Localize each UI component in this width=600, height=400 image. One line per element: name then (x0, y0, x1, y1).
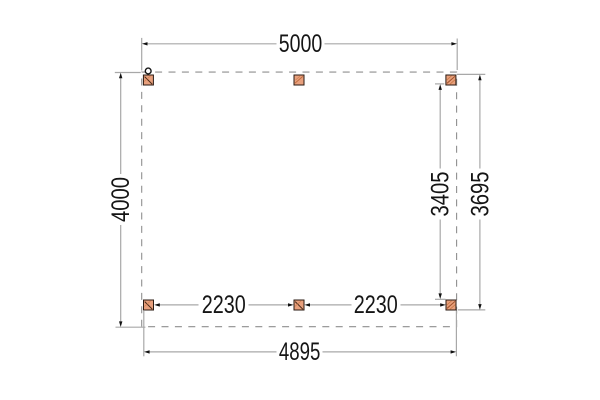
svg-text:4000: 4000 (107, 177, 135, 222)
svg-text:2230: 2230 (354, 291, 398, 319)
svg-text:5000: 5000 (279, 30, 323, 58)
svg-text:3405: 3405 (427, 172, 455, 217)
svg-text:3695: 3695 (466, 172, 494, 217)
svg-text:2230: 2230 (202, 291, 246, 319)
svg-text:4895: 4895 (279, 338, 321, 366)
